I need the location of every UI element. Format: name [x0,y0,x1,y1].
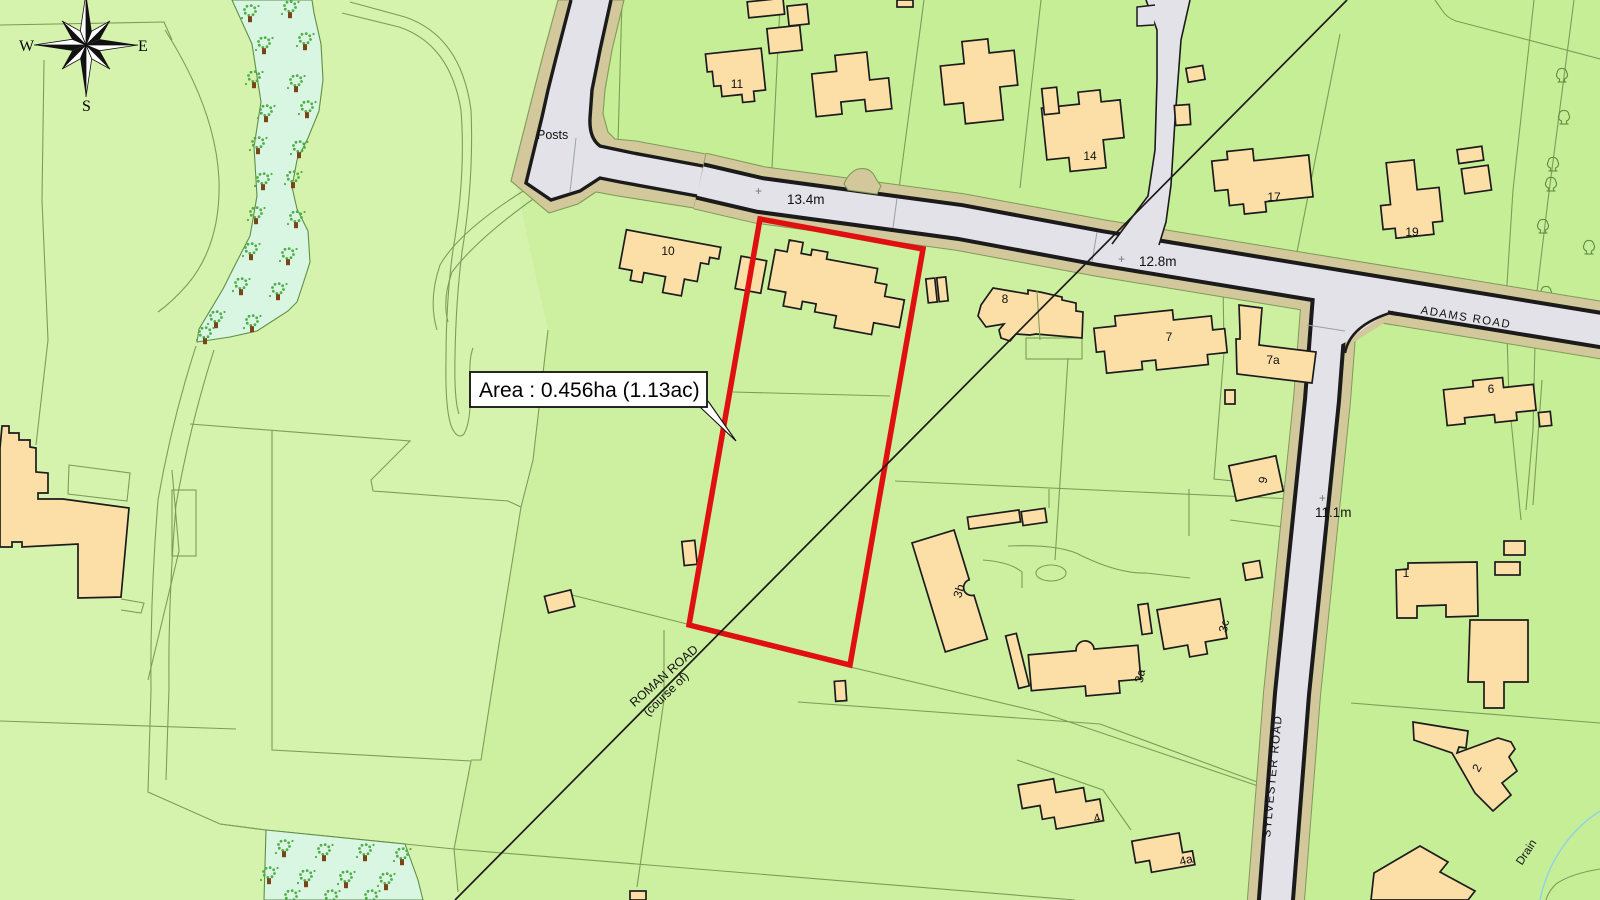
svg-text:14: 14 [1083,149,1097,163]
svg-text:8: 8 [1002,292,1009,306]
svg-text:17: 17 [1267,190,1281,204]
svg-text:S: S [82,98,91,115]
svg-text:+: + [1118,252,1125,266]
svg-text:1: 1 [1403,566,1410,580]
svg-text:7: 7 [1166,330,1173,344]
svg-text:+: + [1319,491,1326,505]
svg-text:13.4m: 13.4m [787,192,825,207]
svg-text:W: W [19,38,35,55]
svg-text:+: + [755,184,762,198]
svg-text:E: E [138,38,148,55]
svg-text:Area : 0.456ha (1.13ac): Area : 0.456ha (1.13ac) [479,379,700,402]
svg-text:12.8m: 12.8m [1139,254,1177,269]
svg-text:Posts: Posts [537,128,568,142]
svg-text:19: 19 [1405,225,1419,239]
svg-text:10: 10 [661,244,675,258]
svg-text:7a: 7a [1266,353,1280,367]
svg-text:6: 6 [1488,382,1495,396]
svg-text:11.1m: 11.1m [1315,505,1352,520]
svg-text:11: 11 [731,77,744,91]
